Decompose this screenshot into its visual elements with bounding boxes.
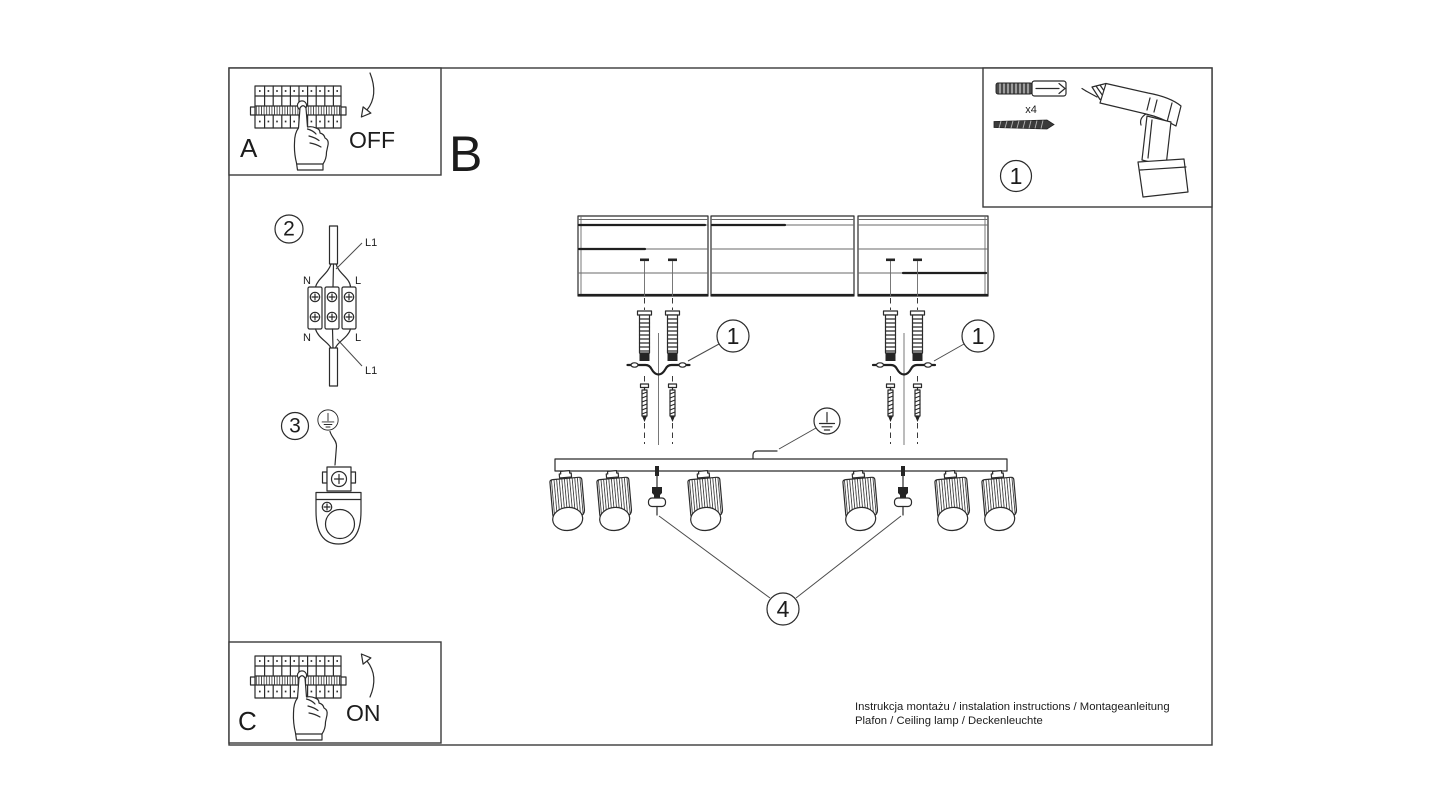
wall-plug [911, 311, 925, 361]
mounting-screw [914, 384, 922, 422]
wire-label-l-top: L [355, 275, 361, 287]
earth-symbol [318, 410, 338, 430]
spotlight [549, 470, 587, 532]
step-2-badge: 2 [275, 215, 303, 243]
spotlight [842, 470, 880, 532]
spotlight [934, 470, 972, 532]
svg-text:1: 1 [727, 323, 740, 349]
ceiling-panel [578, 216, 708, 296]
mains-cable-bottom [330, 348, 338, 386]
wall-plug [884, 311, 898, 361]
terminal-block [308, 287, 356, 329]
step-a-label: A [240, 133, 258, 163]
svg-text:1: 1 [1010, 163, 1023, 189]
callout-4-badge: 4 [767, 593, 799, 625]
ceiling-panel [858, 216, 988, 296]
svg-text:3: 3 [289, 415, 301, 438]
step-c-box: C ON [229, 642, 441, 743]
drill-hole-mark [886, 259, 895, 262]
footer-line-1: Instrukcja montażu / instalation instruc… [855, 701, 1170, 713]
mounting-bracket-detail [316, 493, 361, 545]
wall-plug-icon [996, 81, 1066, 96]
callout-1-badge: 1 [1001, 161, 1032, 192]
drill-hole-mark [640, 259, 649, 262]
off-label: OFF [349, 127, 395, 153]
ceiling-panels [578, 216, 988, 296]
wire-label-l1-top: L1 [365, 237, 377, 249]
step-a-box: A OFF [229, 68, 441, 175]
callout-1-right: 1 [962, 320, 994, 352]
mounting-screw [669, 384, 677, 422]
ceiling-panel [711, 216, 854, 296]
mounting-screw [641, 384, 649, 422]
footer-line-2: Plafon / Ceiling lamp / Deckenleuchte [855, 715, 1043, 727]
spotlight [596, 470, 634, 532]
breaker-panel-icon [251, 86, 347, 128]
quantity-label: x4 [1025, 104, 1037, 116]
parts-box: x4 1 [983, 68, 1212, 207]
earth-terminal [323, 467, 356, 491]
wire-label-l-bottom: L [355, 332, 361, 344]
svg-text:1: 1 [972, 323, 985, 349]
instruction-sheet: A OFF B x4 1 [0, 0, 1440, 810]
wall-plug [666, 311, 680, 361]
wire-label-l1-bottom: L1 [365, 365, 377, 377]
mounting-screw [887, 384, 895, 422]
svg-text:4: 4 [777, 596, 790, 622]
lamp-bar [555, 459, 1007, 471]
earth-symbol [814, 408, 840, 434]
wire-label-n-top: N [303, 275, 311, 287]
svg-text:2: 2 [283, 218, 295, 241]
mains-cable-top [330, 226, 338, 264]
section-b-label: B [449, 126, 482, 182]
diagram-canvas: A OFF B x4 1 [0, 0, 1440, 810]
wall-plug [638, 311, 652, 361]
spotlight [687, 470, 725, 532]
step-3-badge: 3 [282, 413, 309, 440]
wire-label-n-bottom: N [303, 332, 311, 344]
step-c-label: C [238, 706, 257, 736]
screw-icon [994, 120, 1054, 129]
drill-hole-mark [668, 259, 677, 262]
callout-1-left: 1 [717, 320, 749, 352]
drill-hole-mark [913, 259, 922, 262]
spotlight [981, 470, 1019, 532]
on-label: ON [346, 700, 381, 726]
